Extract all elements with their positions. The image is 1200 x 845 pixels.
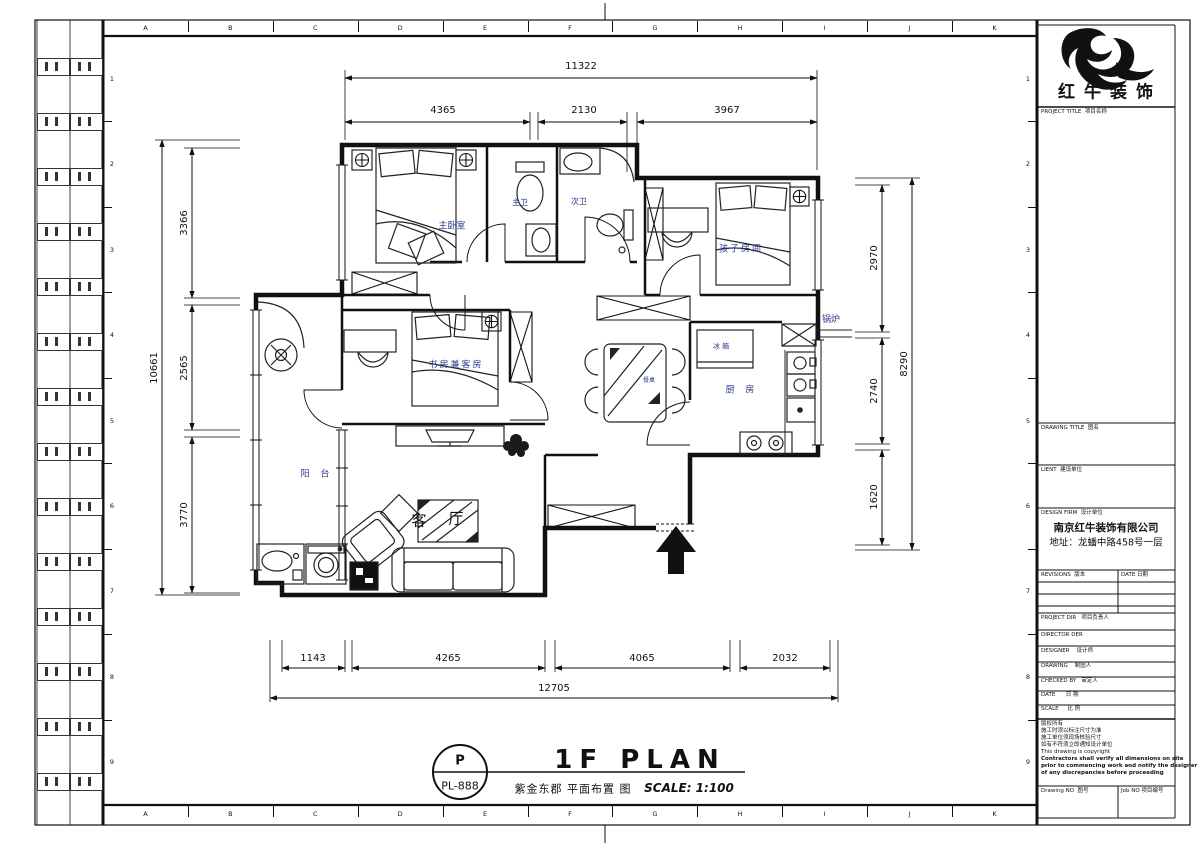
sheet-frame [35, 3, 1190, 843]
room-label-second-bath: 次卫 [571, 198, 587, 206]
grid-letter-top: E [483, 25, 487, 32]
tb-copyright-6: Contractors shall verify all dimensions … [1041, 757, 1184, 763]
strip-cell [37, 663, 70, 681]
grid-number-left: 1 [110, 75, 114, 82]
strip-cell [37, 223, 70, 241]
grid-number-right: 1 [1026, 75, 1030, 82]
strip-cell-mark [45, 612, 48, 621]
footer-tag-letter: P [455, 755, 465, 768]
grid-letter-bottom: K [992, 811, 996, 818]
strip-cell-mark [55, 227, 58, 236]
strip-cell-mark [45, 777, 48, 786]
room-label-master-bedroom: 主卧室 [438, 223, 465, 232]
tb-project-dir: PROJECT DIR 项目负责人 [1041, 616, 1109, 622]
strip-cell [70, 553, 103, 571]
grid-letter-top: G [652, 25, 657, 32]
strip-cell-mark [55, 282, 58, 291]
ruler-tick [612, 21, 613, 32]
grid-letter-bottom: G [652, 811, 657, 818]
strip-cell-mark [78, 62, 81, 71]
grid-number-right: 8 [1026, 674, 1030, 681]
furniture [257, 148, 852, 592]
strip-cell-mark [78, 612, 81, 621]
dim-top-total: 11322 [565, 62, 597, 72]
strip-cell [70, 718, 103, 736]
strip-cell-mark [55, 667, 58, 676]
ruler-tick [358, 806, 359, 817]
tb-client: LIENT 建设单位 [1041, 468, 1082, 474]
strip-cell-mark [88, 392, 91, 401]
room-label-boiler: 锅炉 [822, 316, 840, 325]
ruler-tick [528, 21, 529, 32]
room-label-kitchen: 厨 房 [726, 387, 759, 396]
strip-cell [37, 498, 70, 516]
dim-bottom-4: 2032 [772, 654, 797, 664]
hatched-closets [352, 188, 690, 528]
grid-number-right: 9 [1026, 759, 1030, 766]
tb-scale: SCALE 比 例 [1041, 707, 1080, 713]
ruler-tick [103, 720, 112, 721]
grid-letter-bottom: F [568, 811, 572, 818]
grid-letter-bottom: E [483, 811, 487, 818]
strip-cell-mark [88, 502, 91, 511]
strip-cell-mark [78, 557, 81, 566]
tb-firm-name: 南京红牛装饰有限公司 [1054, 523, 1159, 534]
ruler-tick [103, 292, 112, 293]
room-label-living-1: 客 [411, 514, 426, 529]
strip-cell-mark [55, 777, 58, 786]
ruler-tick [867, 806, 868, 817]
grid-letter-top: J [909, 25, 911, 32]
strip-cell [37, 718, 70, 736]
strip-cell [70, 168, 103, 186]
ruler-tick [1028, 634, 1037, 635]
strip-cell-mark [55, 337, 58, 346]
grid-letter-bottom: J [909, 811, 911, 818]
strip-cell-mark [55, 447, 58, 456]
tb-date: DATE 日 期 [1041, 693, 1079, 699]
windows [250, 165, 824, 580]
dim-top-3: 3967 [714, 106, 739, 116]
ruler-tick [358, 21, 359, 32]
grid-letter-top: H [737, 25, 742, 32]
grid-letter-top: F [568, 25, 572, 32]
plan-subtitle: 紫金东郡 平面布置 图 [515, 784, 632, 795]
strip-cell-mark [45, 282, 48, 291]
tb-revisions-date: DATE 日期 [1121, 573, 1148, 579]
tb-revisions: REVISIONS 版本 [1041, 573, 1085, 579]
strip-cell [70, 58, 103, 76]
dim-right-2: 2740 [870, 378, 880, 403]
strip-cell [70, 498, 103, 516]
dim-left-3: 3770 [180, 502, 190, 527]
ruler-tick [697, 21, 698, 32]
ruler-tick [697, 806, 698, 817]
grid-number-right: 7 [1026, 588, 1030, 595]
strip-cell-mark [78, 667, 81, 676]
ruler-tick [867, 21, 868, 32]
ruler-tick [103, 378, 112, 379]
room-label-fridge: 冰 箱 [713, 344, 729, 351]
strip-cell-mark [55, 172, 58, 181]
ruler-tick [1028, 549, 1037, 550]
strip-cell-mark [45, 227, 48, 236]
ruler-tick [952, 806, 953, 817]
strip-cell-mark [45, 62, 48, 71]
room-label-master-bath: 主卫 [512, 199, 528, 207]
tb-drawing-no: Drawing NO 图号 [1041, 789, 1089, 795]
grid-letter-top: I [824, 25, 826, 32]
tb-copyright-4: 如有不符须立即通知设计单位 [1041, 743, 1113, 749]
strip-cell [37, 333, 70, 351]
tb-designer: DESIGNER 设计师 [1041, 649, 1093, 655]
room-label-study-guest: 书房兼客房 [428, 362, 483, 371]
strip-cell [37, 388, 70, 406]
strip-cell-mark [78, 337, 81, 346]
strip-cell-mark [88, 62, 91, 71]
brand-dragon-icon [1062, 28, 1154, 90]
strip-cell [70, 113, 103, 131]
strip-cell [37, 608, 70, 626]
strip-cell-mark [78, 722, 81, 731]
strip-cell [37, 773, 70, 791]
dimension-lines [155, 70, 920, 702]
ruler-tick [188, 21, 189, 32]
strip-cell-mark [45, 502, 48, 511]
strip-cell-mark [78, 777, 81, 786]
grid-number-left: 8 [110, 674, 114, 681]
ruler-tick [1028, 463, 1037, 464]
grid-number-left: 7 [110, 588, 114, 595]
dim-bottom-1: 1143 [300, 654, 325, 664]
strip-cell [37, 443, 70, 461]
dim-right-1: 2970 [870, 245, 880, 270]
strip-cell-mark [88, 172, 91, 181]
strip-cell [70, 608, 103, 626]
tb-drawing: DRAWING 制图人 [1041, 664, 1091, 670]
ruler-tick [612, 806, 613, 817]
strip-cell-mark [88, 667, 91, 676]
ruler-tick [103, 121, 112, 122]
grid-number-left: 9 [110, 759, 114, 766]
dim-right-3: 1620 [870, 484, 880, 509]
titleblock-grid [1037, 25, 1175, 818]
plant-icon [503, 434, 529, 457]
dim-left-2: 2565 [180, 355, 190, 380]
strip-cell-mark [88, 117, 91, 126]
dim-right-total: 8290 [900, 351, 910, 376]
dim-top-2: 2130 [571, 106, 596, 116]
dim-top-1: 4365 [430, 106, 455, 116]
grid-letter-bottom: D [398, 811, 403, 818]
strip-cell [37, 278, 70, 296]
ruler-tick [1028, 207, 1037, 208]
room-label-kids-room: 孩子房间 [719, 246, 763, 255]
door-swings [304, 217, 700, 445]
brand-name: 红牛装饰 [1058, 85, 1162, 102]
grid-number-left: 6 [110, 503, 114, 510]
tb-copyright-2: 施工时须以标注尺寸为准 [1041, 729, 1102, 735]
tb-design-firm: DESIGN FIRM 设计单位 [1041, 511, 1103, 517]
strip-cell-mark [55, 557, 58, 566]
ruler-tick [528, 806, 529, 817]
strip-cell [37, 168, 70, 186]
ruler-tick [952, 21, 953, 32]
strip-cell [70, 333, 103, 351]
strip-cell-mark [55, 117, 58, 126]
tb-drawing-title: DRAWING TITLE 图名 [1041, 426, 1099, 432]
strip-cell [37, 58, 70, 76]
tb-copyright-5: This drawing is copyright [1041, 750, 1110, 756]
room-label-living-2: 厅 [448, 512, 463, 527]
ruler-tick [443, 806, 444, 817]
dim-left-total: 10661 [150, 352, 160, 384]
strip-cell-mark [88, 447, 91, 456]
grid-number-left: 5 [110, 417, 114, 424]
strip-cell [70, 663, 103, 681]
grid-letter-top: D [398, 25, 403, 32]
strip-cell-mark [55, 392, 58, 401]
grid-letter-bottom: I [824, 811, 826, 818]
strip-cell-mark [45, 337, 48, 346]
grid-letter-bottom: A [143, 811, 147, 818]
grid-number-right: 6 [1026, 503, 1030, 510]
ruler-tick [1028, 121, 1037, 122]
grid-number-left: 4 [110, 332, 114, 339]
strip-cell-mark [88, 722, 91, 731]
grid-number-right: 3 [1026, 246, 1030, 253]
ruler-tick [1028, 378, 1037, 379]
strip-cell [70, 388, 103, 406]
strip-cell-mark [78, 282, 81, 291]
strip-cell-mark [45, 667, 48, 676]
tb-director: DIRECTOR DER [1041, 633, 1083, 639]
drawing-sheet: 11322 4365 2130 3967 10661 3366 2565 377… [0, 0, 1200, 845]
grid-number-left: 3 [110, 246, 114, 253]
tb-firm-address: 地址：龙蟠中路458号一层 [1049, 538, 1162, 548]
tb-copyright-7: prior to commencing work and notify the … [1041, 764, 1197, 770]
strip-cell-mark [55, 722, 58, 731]
ruler-tick [273, 21, 274, 32]
strip-cell-mark [88, 227, 91, 236]
strip-cell [70, 223, 103, 241]
footer-tag-number: PL-888 [441, 781, 479, 792]
strip-cell-mark [88, 282, 91, 291]
strip-cell-mark [55, 62, 58, 71]
grid-letter-top: K [992, 25, 996, 32]
ruler-tick [1028, 720, 1037, 721]
strip-cell [37, 553, 70, 571]
strip-cell-mark [45, 722, 48, 731]
ruler-tick [188, 806, 189, 817]
room-label-dining-table: 餐桌 [643, 378, 655, 384]
strip-cell-mark [78, 117, 81, 126]
strip-cell-mark [55, 612, 58, 621]
strip-cell-mark [55, 502, 58, 511]
grid-number-right: 4 [1026, 332, 1030, 339]
strip-cell-mark [45, 447, 48, 456]
ruler-tick [103, 634, 112, 635]
grid-letter-top: B [228, 25, 232, 32]
strip-cell-mark [78, 502, 81, 511]
strip-cell-mark [88, 337, 91, 346]
dim-bottom-3: 4065 [629, 654, 654, 664]
strip-cell-mark [78, 227, 81, 236]
dim-bottom-2: 4265 [435, 654, 460, 664]
plan-title: 1F PLAN [554, 747, 725, 773]
tb-job-no: Job NO 项目编号 [1121, 789, 1163, 795]
grid-letter-top: C [313, 25, 318, 32]
ruler-tick [103, 207, 112, 208]
strip-cell-mark [88, 777, 91, 786]
tb-copyright-1: 版权所有 [1041, 722, 1063, 728]
ruler-tick [782, 21, 783, 32]
strip-cell-mark [78, 172, 81, 181]
ruler-tick [1028, 292, 1037, 293]
ruler-tick [103, 463, 112, 464]
grid-number-right: 2 [1026, 161, 1030, 168]
strip-cell-mark [88, 612, 91, 621]
grid-letter-bottom: B [228, 811, 232, 818]
grid-letter-bottom: C [313, 811, 318, 818]
strip-cell [70, 443, 103, 461]
tb-checked-by: CHECKED BY 审定人 [1041, 679, 1098, 685]
strip-cell-mark [78, 447, 81, 456]
grid-number-left: 2 [110, 161, 114, 168]
plan-scale: SCALE: 1:100 [644, 782, 734, 794]
ruler-tick [103, 549, 112, 550]
strip-cell [70, 278, 103, 296]
strip-cell [70, 773, 103, 791]
strip-cell-mark [45, 557, 48, 566]
tb-copyright-3: 施工单位须现场核验尺寸 [1041, 736, 1102, 742]
strip-cell-mark [45, 172, 48, 181]
grid-letter-top: A [143, 25, 147, 32]
entry-arrow-icon [656, 526, 696, 574]
tb-project-title: PROJECT TITLE 项目名称 [1041, 110, 1107, 116]
plan-canvas [0, 0, 1200, 845]
dim-bottom-total: 12705 [538, 684, 570, 694]
tb-copyright-8: of any discrepancies before proceeding [1041, 771, 1164, 777]
strip-cell-mark [45, 117, 48, 126]
grid-number-right: 5 [1026, 417, 1030, 424]
ruler-tick [782, 806, 783, 817]
strip-cell-mark [88, 557, 91, 566]
ruler-tick [273, 806, 274, 817]
strip-cell-mark [45, 392, 48, 401]
strip-cell [37, 113, 70, 131]
dim-left-1: 3366 [180, 210, 190, 235]
room-label-balcony: 阳 台 [301, 471, 334, 480]
strip-cell-mark [78, 392, 81, 401]
ruler-tick [443, 21, 444, 32]
grid-letter-bottom: H [737, 811, 742, 818]
